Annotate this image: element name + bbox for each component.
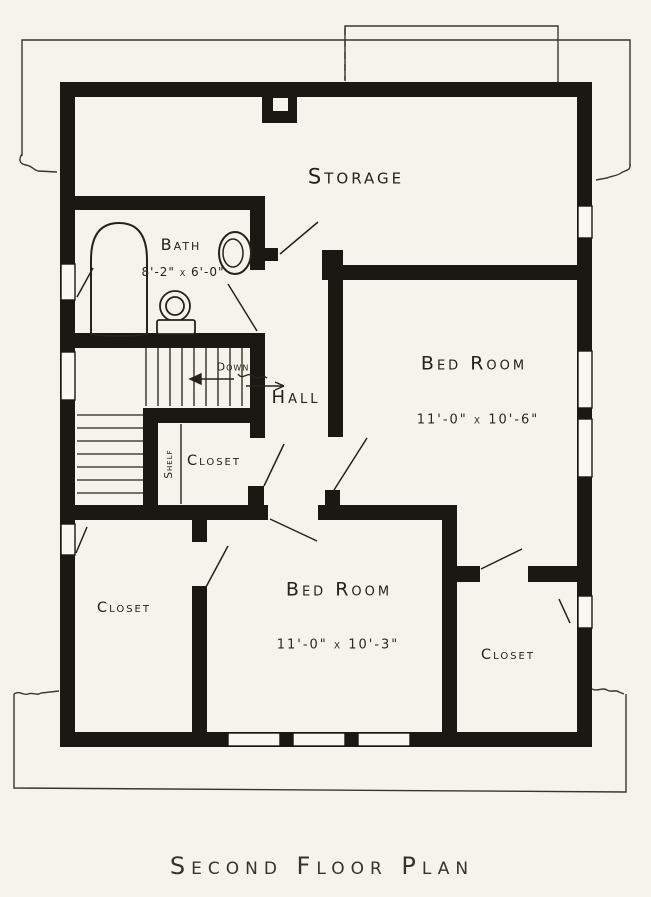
closet-left-label: Closet — [97, 601, 151, 616]
shelf-label: Shelf — [164, 449, 175, 478]
floor-plan-sheet: Storage Bath 8'-2" x 6'-0" Bed Room 11'-… — [0, 0, 651, 897]
bath-label: Bath — [161, 237, 202, 253]
stairs-lower-run — [77, 415, 143, 493]
hall-closet-label: Closet — [187, 454, 241, 469]
bedroom-lower-label: Bed Room — [286, 581, 392, 600]
windows — [61, 206, 592, 746]
closet-lower-right-label: Closet — [481, 648, 535, 663]
hall-label: Hall — [272, 389, 321, 407]
bedroom-right-label: Bed Room — [421, 355, 527, 374]
sink — [157, 291, 195, 334]
bath-dimensions: 8'-2" x 6'-0" — [142, 266, 225, 278]
stairs-down-label: Down — [217, 362, 250, 373]
plan-title: Second Floor Plan — [170, 854, 474, 878]
bedroom-lower-dimensions: 11'-0" x 10'-3" — [277, 639, 400, 652]
down-arrow — [190, 374, 284, 390]
chimney — [262, 93, 297, 123]
floor-plan-drawing — [0, 0, 651, 897]
storage-label: Storage — [308, 167, 404, 188]
bedroom-right-dimensions: 11'-0" x 10'-6" — [417, 414, 540, 427]
bathtub — [91, 223, 147, 336]
roof-outline-upper — [20, 26, 630, 180]
